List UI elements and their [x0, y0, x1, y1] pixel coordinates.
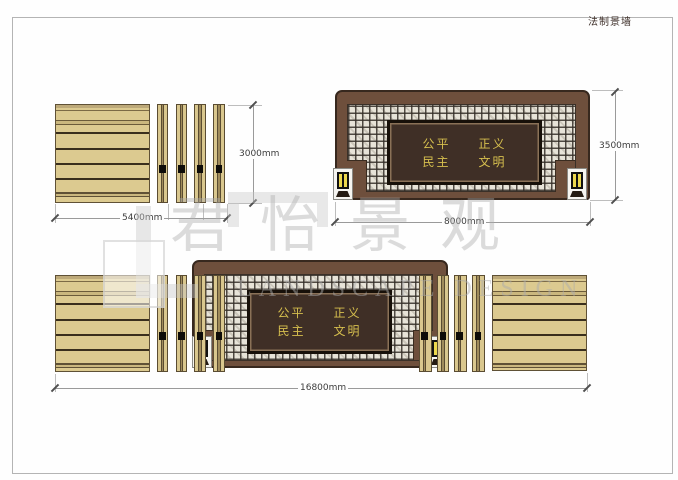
- wood-slat-panel: [55, 104, 150, 203]
- extension-line: [227, 204, 228, 223]
- plaque-text-line1: 公平 正义: [422, 138, 506, 150]
- timber-post: [472, 275, 485, 372]
- plaque-text-line1: 公平 正义: [277, 307, 361, 319]
- extension-line: [55, 374, 56, 392]
- dimension-label-5400: 5400mm: [120, 213, 164, 223]
- timber-post: [454, 275, 467, 372]
- inscription-plaque: 公平 正义 民主 文明: [387, 120, 542, 185]
- feature-wall: 公平 正义 民主 文明: [192, 260, 448, 368]
- timber-post: [213, 275, 225, 372]
- dimension-label-16800: 16800mm: [298, 383, 348, 393]
- dimension-label-3000: 3000mm: [237, 149, 281, 159]
- plaque-text-line2: 民主 文明: [422, 156, 506, 168]
- extension-line: [592, 90, 623, 91]
- timber-post: [157, 275, 169, 372]
- extension-line: [55, 204, 56, 223]
- timber-post: [419, 275, 432, 372]
- plaque-text-line2: 民主 文明: [277, 325, 361, 337]
- lantern-icon: [567, 168, 587, 200]
- timber-post: [176, 104, 188, 203]
- timber-post: [437, 275, 449, 372]
- wood-slat-panel: [55, 275, 150, 372]
- drawing-title: 法制景墙: [588, 13, 632, 28]
- inscription-plaque: 公平 正义 民主 文明: [247, 290, 392, 354]
- timber-post: [194, 104, 206, 203]
- extension-line: [228, 105, 262, 106]
- feature-wall: 公平 正义 民主 文明: [335, 90, 590, 200]
- dimension-label-3500: 3500mm: [597, 141, 641, 151]
- sheet-border: [12, 17, 673, 474]
- timber-post: [176, 275, 188, 372]
- timber-post: [213, 104, 225, 203]
- lantern-icon: [333, 168, 353, 200]
- drawing-sheet: 法制景墙 5400mm 3000mm 公平 正义 民: [0, 0, 678, 480]
- wood-slat-panel: [492, 275, 587, 371]
- extension-line: [590, 200, 623, 201]
- timber-post: [157, 104, 169, 203]
- timber-post: [194, 275, 206, 372]
- dimension-label-8000: 8000mm: [442, 217, 486, 227]
- extension-line: [228, 203, 262, 204]
